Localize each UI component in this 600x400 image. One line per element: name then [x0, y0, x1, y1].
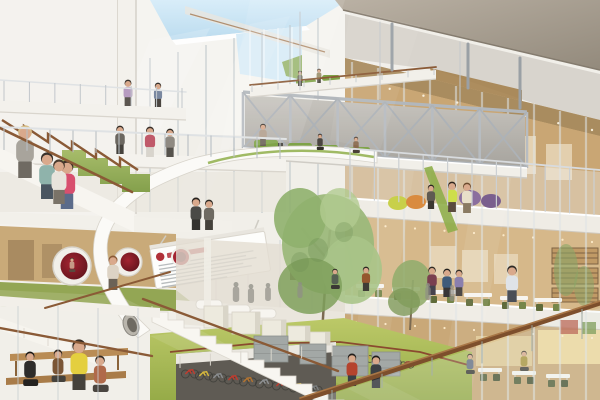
atrium-scene: [0, 0, 600, 400]
person: [425, 283, 430, 300]
small-plant: [574, 266, 594, 306]
person: [447, 182, 457, 212]
person: [115, 126, 125, 154]
foliage-shadow: [308, 238, 328, 262]
person: [248, 284, 254, 303]
person: [427, 185, 435, 209]
flower-vase: [114, 338, 122, 346]
person: [265, 283, 271, 301]
person: [462, 183, 472, 213]
person: [71, 339, 88, 390]
person: [506, 266, 518, 302]
atrium-rendering: Architectural rendering of a multi-store…: [0, 0, 600, 400]
person: [362, 267, 370, 291]
person: [204, 200, 214, 230]
tree-foliage: [388, 288, 420, 316]
pod-interior: [121, 253, 140, 272]
person: [191, 198, 202, 230]
person: [16, 125, 34, 178]
person: [233, 282, 239, 302]
person: [449, 285, 454, 301]
person: [297, 282, 302, 298]
foliage-shadow: [291, 252, 309, 272]
person: [154, 83, 162, 107]
person: [455, 270, 464, 296]
hall-pier: [204, 238, 211, 316]
person: [145, 127, 155, 157]
foliage-shadow: [335, 222, 353, 242]
person: [107, 256, 119, 290]
person: [52, 159, 67, 204]
doorway: [8, 240, 34, 280]
person: [165, 129, 175, 157]
